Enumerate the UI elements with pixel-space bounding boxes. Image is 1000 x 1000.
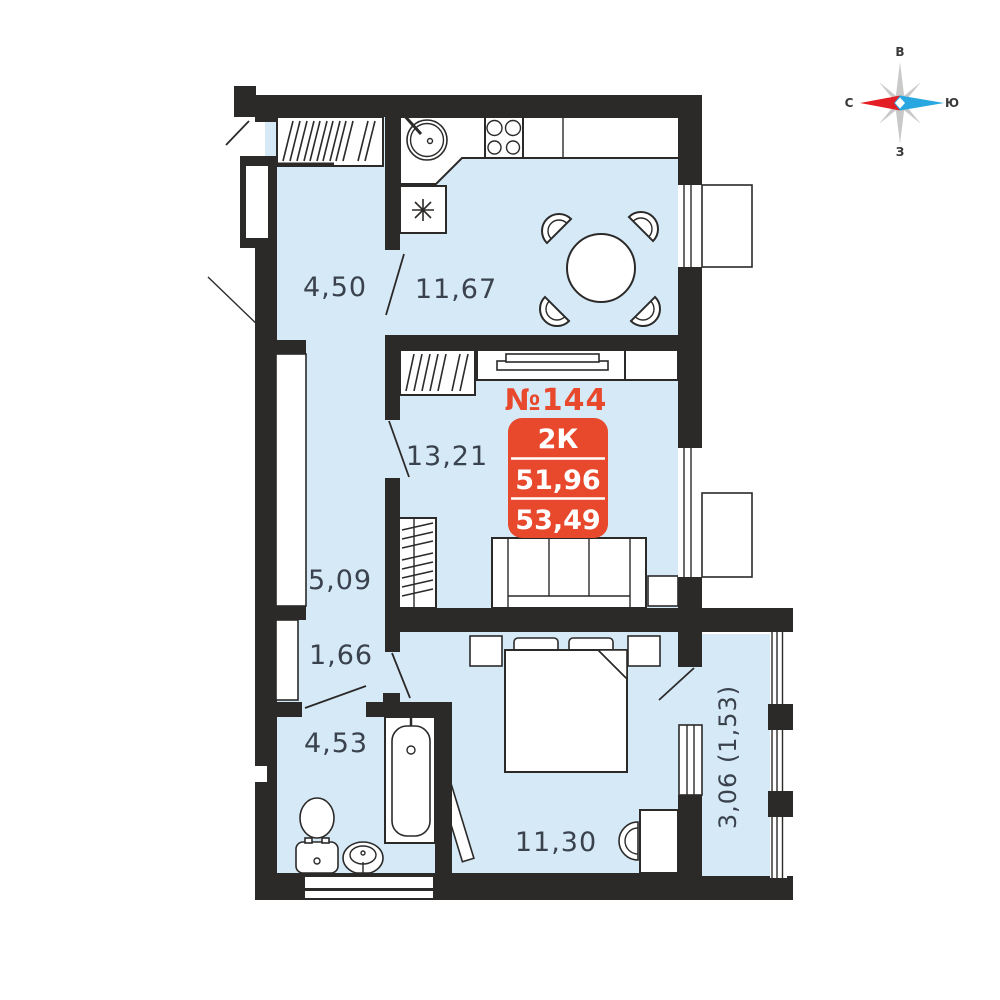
nightstand: [628, 636, 660, 666]
ac-unit: [702, 185, 752, 267]
unit-total-area: 53,49: [515, 505, 600, 536]
room-label-bathroom: 4,53: [304, 728, 368, 759]
compass-icon: В С Ю З: [845, 45, 959, 159]
kitchen-window: [678, 185, 702, 267]
room-label-balcony: 3,06 (1,53): [714, 685, 742, 829]
room-label-kitchen: 11,67: [415, 274, 497, 305]
bedroom-balcony-window: [679, 725, 702, 795]
floor-plan: 4,50 11,67 13,21 5,09 1,66 4,53 11,30 3,…: [0, 0, 1000, 1000]
room-label-bedroom: 11,30: [515, 827, 597, 858]
compass-label-top: В: [895, 45, 904, 59]
side-table: [648, 576, 678, 606]
sofa: [492, 538, 646, 608]
unit-number: №144: [505, 383, 608, 418]
living-window: [678, 448, 702, 577]
floor-plan-page: 4,50 11,67 13,21 5,09 1,66 4,53 11,30 3,…: [0, 0, 1000, 1000]
living-closet: [400, 350, 475, 395]
unit-type: 2К: [538, 424, 579, 455]
wardrobe: [399, 518, 436, 608]
corridor-niche: [276, 354, 306, 606]
unit-living-area: 51,96: [515, 465, 600, 496]
tv: [497, 354, 608, 370]
vestibule-niche: [276, 620, 298, 700]
compass-label-bottom: З: [896, 145, 905, 159]
room-label-living: 13,21: [406, 441, 488, 472]
room-label-vestibule: 1,66: [309, 640, 373, 671]
room-label-corridor: 5,09: [308, 565, 372, 596]
unit-info-badge: 2К 51,96 53,49: [508, 418, 608, 538]
bed: [505, 650, 627, 772]
bathtub: [385, 708, 435, 843]
stove: [485, 117, 523, 158]
compass-label-right: Ю: [945, 96, 959, 110]
hall-closet: [277, 117, 383, 166]
nightstand: [470, 636, 502, 666]
dining-table: [567, 234, 635, 302]
ac-unit: [702, 493, 752, 577]
balcony-glazing: [768, 632, 793, 878]
entrance-door-swing: [226, 121, 249, 145]
exterior-line: [208, 277, 263, 330]
compass-label-left: С: [845, 96, 854, 110]
desk: [640, 810, 678, 873]
cabinet: [625, 350, 678, 380]
room-label-hallway: 4,50: [303, 272, 367, 303]
fridge-star-icon: [412, 199, 434, 221]
fridge: [400, 186, 446, 233]
